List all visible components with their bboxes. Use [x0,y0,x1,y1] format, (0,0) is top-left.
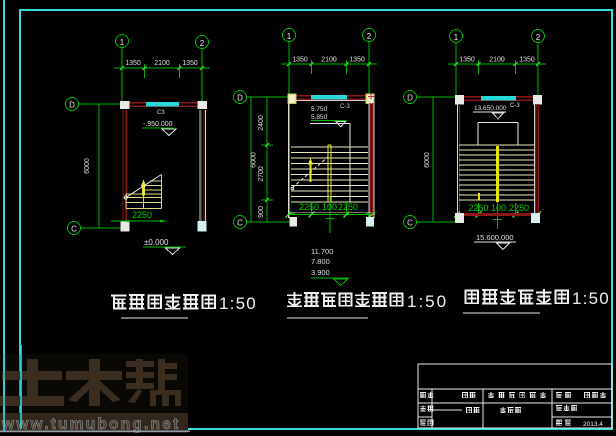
svg-text:1350: 1350 [182,60,198,67]
svg-text:2100: 2100 [321,57,337,64]
svg-text:2: 2 [536,33,541,42]
svg-text:2: 2 [200,39,205,48]
svg-text:3.900: 3.900 [311,268,330,277]
svg-text:100: 100 [491,203,506,213]
svg-text:±0.000: ±0.000 [144,238,169,247]
svg-text:6000: 6000 [424,152,431,168]
svg-text:2013.4: 2013.4 [583,421,603,428]
svg-text:2700: 2700 [258,166,265,182]
svg-text:2250: 2250 [509,203,529,213]
svg-text:1:50: 1:50 [219,294,257,313]
svg-text:1350: 1350 [125,60,141,67]
svg-text:1:50: 1:50 [407,292,448,311]
svg-text:C: C [71,225,77,234]
svg-text:5.750: 5.750 [311,106,328,113]
svg-text:1350: 1350 [459,57,475,64]
svg-text:2250: 2250 [132,210,152,220]
svg-text:1: 1 [454,33,459,42]
svg-text:13.650.000: 13.650.000 [474,105,507,112]
svg-text:2400: 2400 [258,115,265,131]
svg-text:2100: 2100 [154,60,170,67]
svg-text:1350: 1350 [292,57,308,64]
svg-text:2100: 2100 [489,57,505,64]
svg-text:C-3: C-3 [510,103,520,109]
svg-text:7.800: 7.800 [311,257,330,266]
svg-text:5.850: 5.850 [311,114,328,121]
svg-text:6000: 6000 [84,158,91,174]
svg-text:2250: 2250 [338,202,358,212]
svg-text:-.950.000: -.950.000 [143,121,173,128]
svg-text:1: 1 [287,32,292,41]
svg-text:D: D [407,94,413,103]
svg-text:C: C [237,219,243,228]
svg-text:900: 900 [258,206,265,218]
svg-text:C-3: C-3 [340,104,350,110]
svg-text:1: 1 [120,38,125,47]
svg-text:2: 2 [367,32,372,41]
svg-text:6000: 6000 [251,152,258,168]
svg-text:D: D [69,101,75,110]
svg-text:15.600.000: 15.600.000 [476,233,514,242]
svg-text:D: D [237,94,243,103]
svg-text:C3: C3 [157,110,165,116]
svg-text:1350: 1350 [519,57,535,64]
svg-text:2250: 2250 [299,202,319,212]
svg-text:1350: 1350 [349,57,365,64]
svg-text:1:50: 1:50 [572,289,610,308]
svg-text:11.700: 11.700 [311,247,333,256]
svg-text:C: C [407,219,413,228]
svg-text:www.tumubong.net: www.tumubong.net [1,416,180,433]
